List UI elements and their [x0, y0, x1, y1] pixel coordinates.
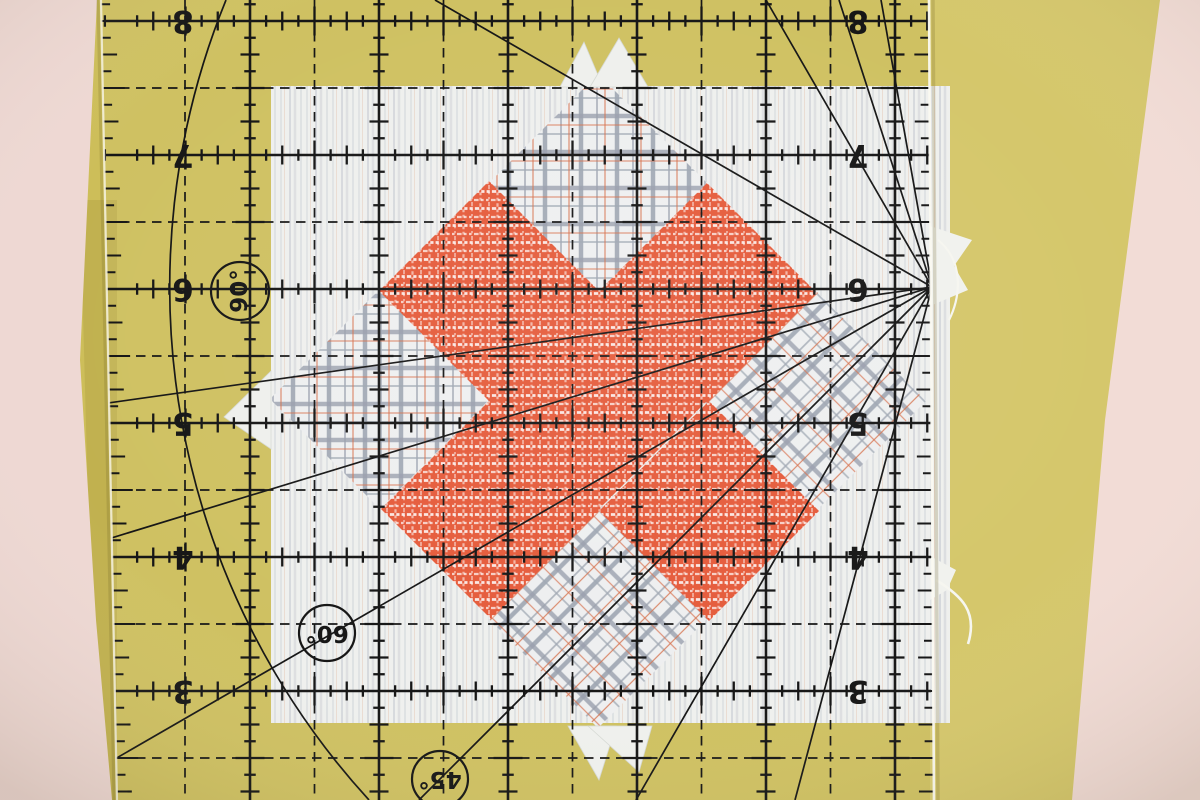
ruler-number-left-5: 5	[172, 405, 194, 441]
angle-label-60: 60°	[305, 620, 349, 646]
ruler-number-left-7: 7	[172, 137, 194, 173]
quilting-ruler: 90° 60° 45° 8 7 6 5 4 3 8 7 6 5 4 3	[98, 0, 938, 800]
angle-label-45: 45°	[418, 766, 462, 792]
ruler-number-right-7: 7	[847, 137, 869, 173]
ruler-number-left-6: 6	[172, 271, 194, 307]
ruler-acrylic	[101, 0, 934, 800]
quilting-photo: 90° 60° 45° 8 7 6 5 4 3 8 7 6 5 4 3	[0, 0, 1200, 800]
ruler-number-left-8: 8	[172, 3, 194, 39]
ruler-number-right-5: 5	[847, 405, 869, 441]
ruler-number-right-6: 6	[847, 271, 869, 307]
ruler-number-right-3: 3	[847, 673, 869, 709]
ruler-number-right-4: 4	[847, 539, 869, 575]
ruler-number-left-4: 4	[172, 539, 194, 575]
ruler-number-left-3: 3	[172, 673, 194, 709]
ruler-number-right-8: 8	[847, 3, 869, 39]
angle-label-90: 90°	[227, 269, 253, 313]
scene: 90° 60° 45° 8 7 6 5 4 3 8 7 6 5 4 3	[0, 0, 1200, 800]
